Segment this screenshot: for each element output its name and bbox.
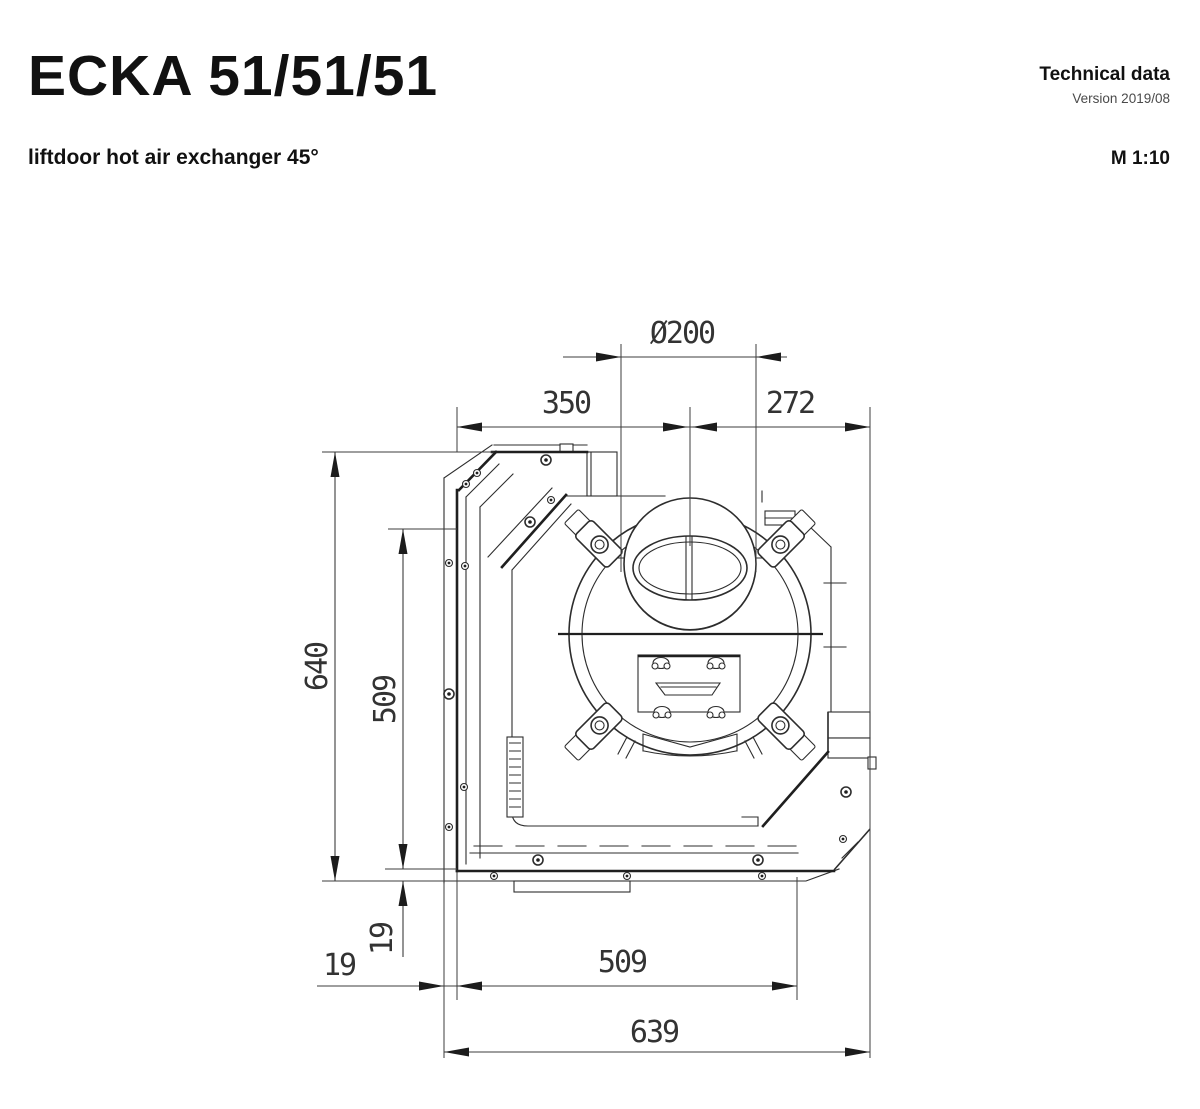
screw: [446, 824, 453, 831]
dim-width-overall: 639: [630, 1015, 679, 1050]
scale-label: M 1:10: [1111, 148, 1170, 169]
screw: [533, 855, 543, 865]
version-label: Version 2019/08: [1072, 91, 1170, 106]
doc-type-label: Technical data: [1039, 64, 1170, 85]
screw: [444, 689, 454, 699]
door-clamp-bottom-right: [756, 701, 817, 762]
screw: [840, 836, 847, 843]
screw: [462, 563, 469, 570]
door-clamp-bottom-left: [563, 701, 624, 762]
screw: [463, 481, 470, 488]
latch-clip: [653, 707, 671, 719]
latch-clip: [652, 658, 670, 670]
screw: [446, 560, 453, 567]
dim-width-inner: 509: [598, 945, 647, 980]
screw: [548, 497, 555, 504]
screw: [624, 873, 631, 880]
screw: [541, 455, 551, 465]
latch-plate: [638, 655, 740, 718]
page-title: ECKA 51/51/51: [28, 44, 438, 108]
door-clamp-top-left: [563, 508, 624, 569]
dim-collar-diameter: Ø200: [650, 316, 715, 351]
screw: [841, 787, 851, 797]
type-label-sticker: [507, 737, 523, 817]
latch-clip: [707, 707, 725, 719]
latch-clip: [707, 658, 725, 670]
dim-width-right: 272: [766, 386, 814, 421]
datasheet-page: ECKA 51/51/51 liftdoor hot air exchanger…: [0, 0, 1200, 1109]
dim-wall-thickness-bottom: 19: [365, 922, 400, 955]
dim-width-left: 350: [542, 386, 591, 421]
header: ECKA 51/51/51 liftdoor hot air exchanger…: [28, 44, 1170, 169]
dim-depth-overall: 640: [300, 642, 335, 691]
dim-wall-thickness-left: 19: [323, 948, 356, 983]
screw: [525, 517, 535, 527]
page-subtitle: liftdoor hot air exchanger 45°: [28, 146, 319, 169]
screw: [759, 873, 766, 880]
exchanger-plan-view: Ø200 350 272 640 509 19 19 509 639: [300, 316, 876, 1058]
screw: [474, 470, 481, 477]
screw: [753, 855, 763, 865]
dim-depth-inner: 509: [368, 675, 403, 724]
screw: [491, 873, 498, 880]
screw: [461, 784, 468, 791]
